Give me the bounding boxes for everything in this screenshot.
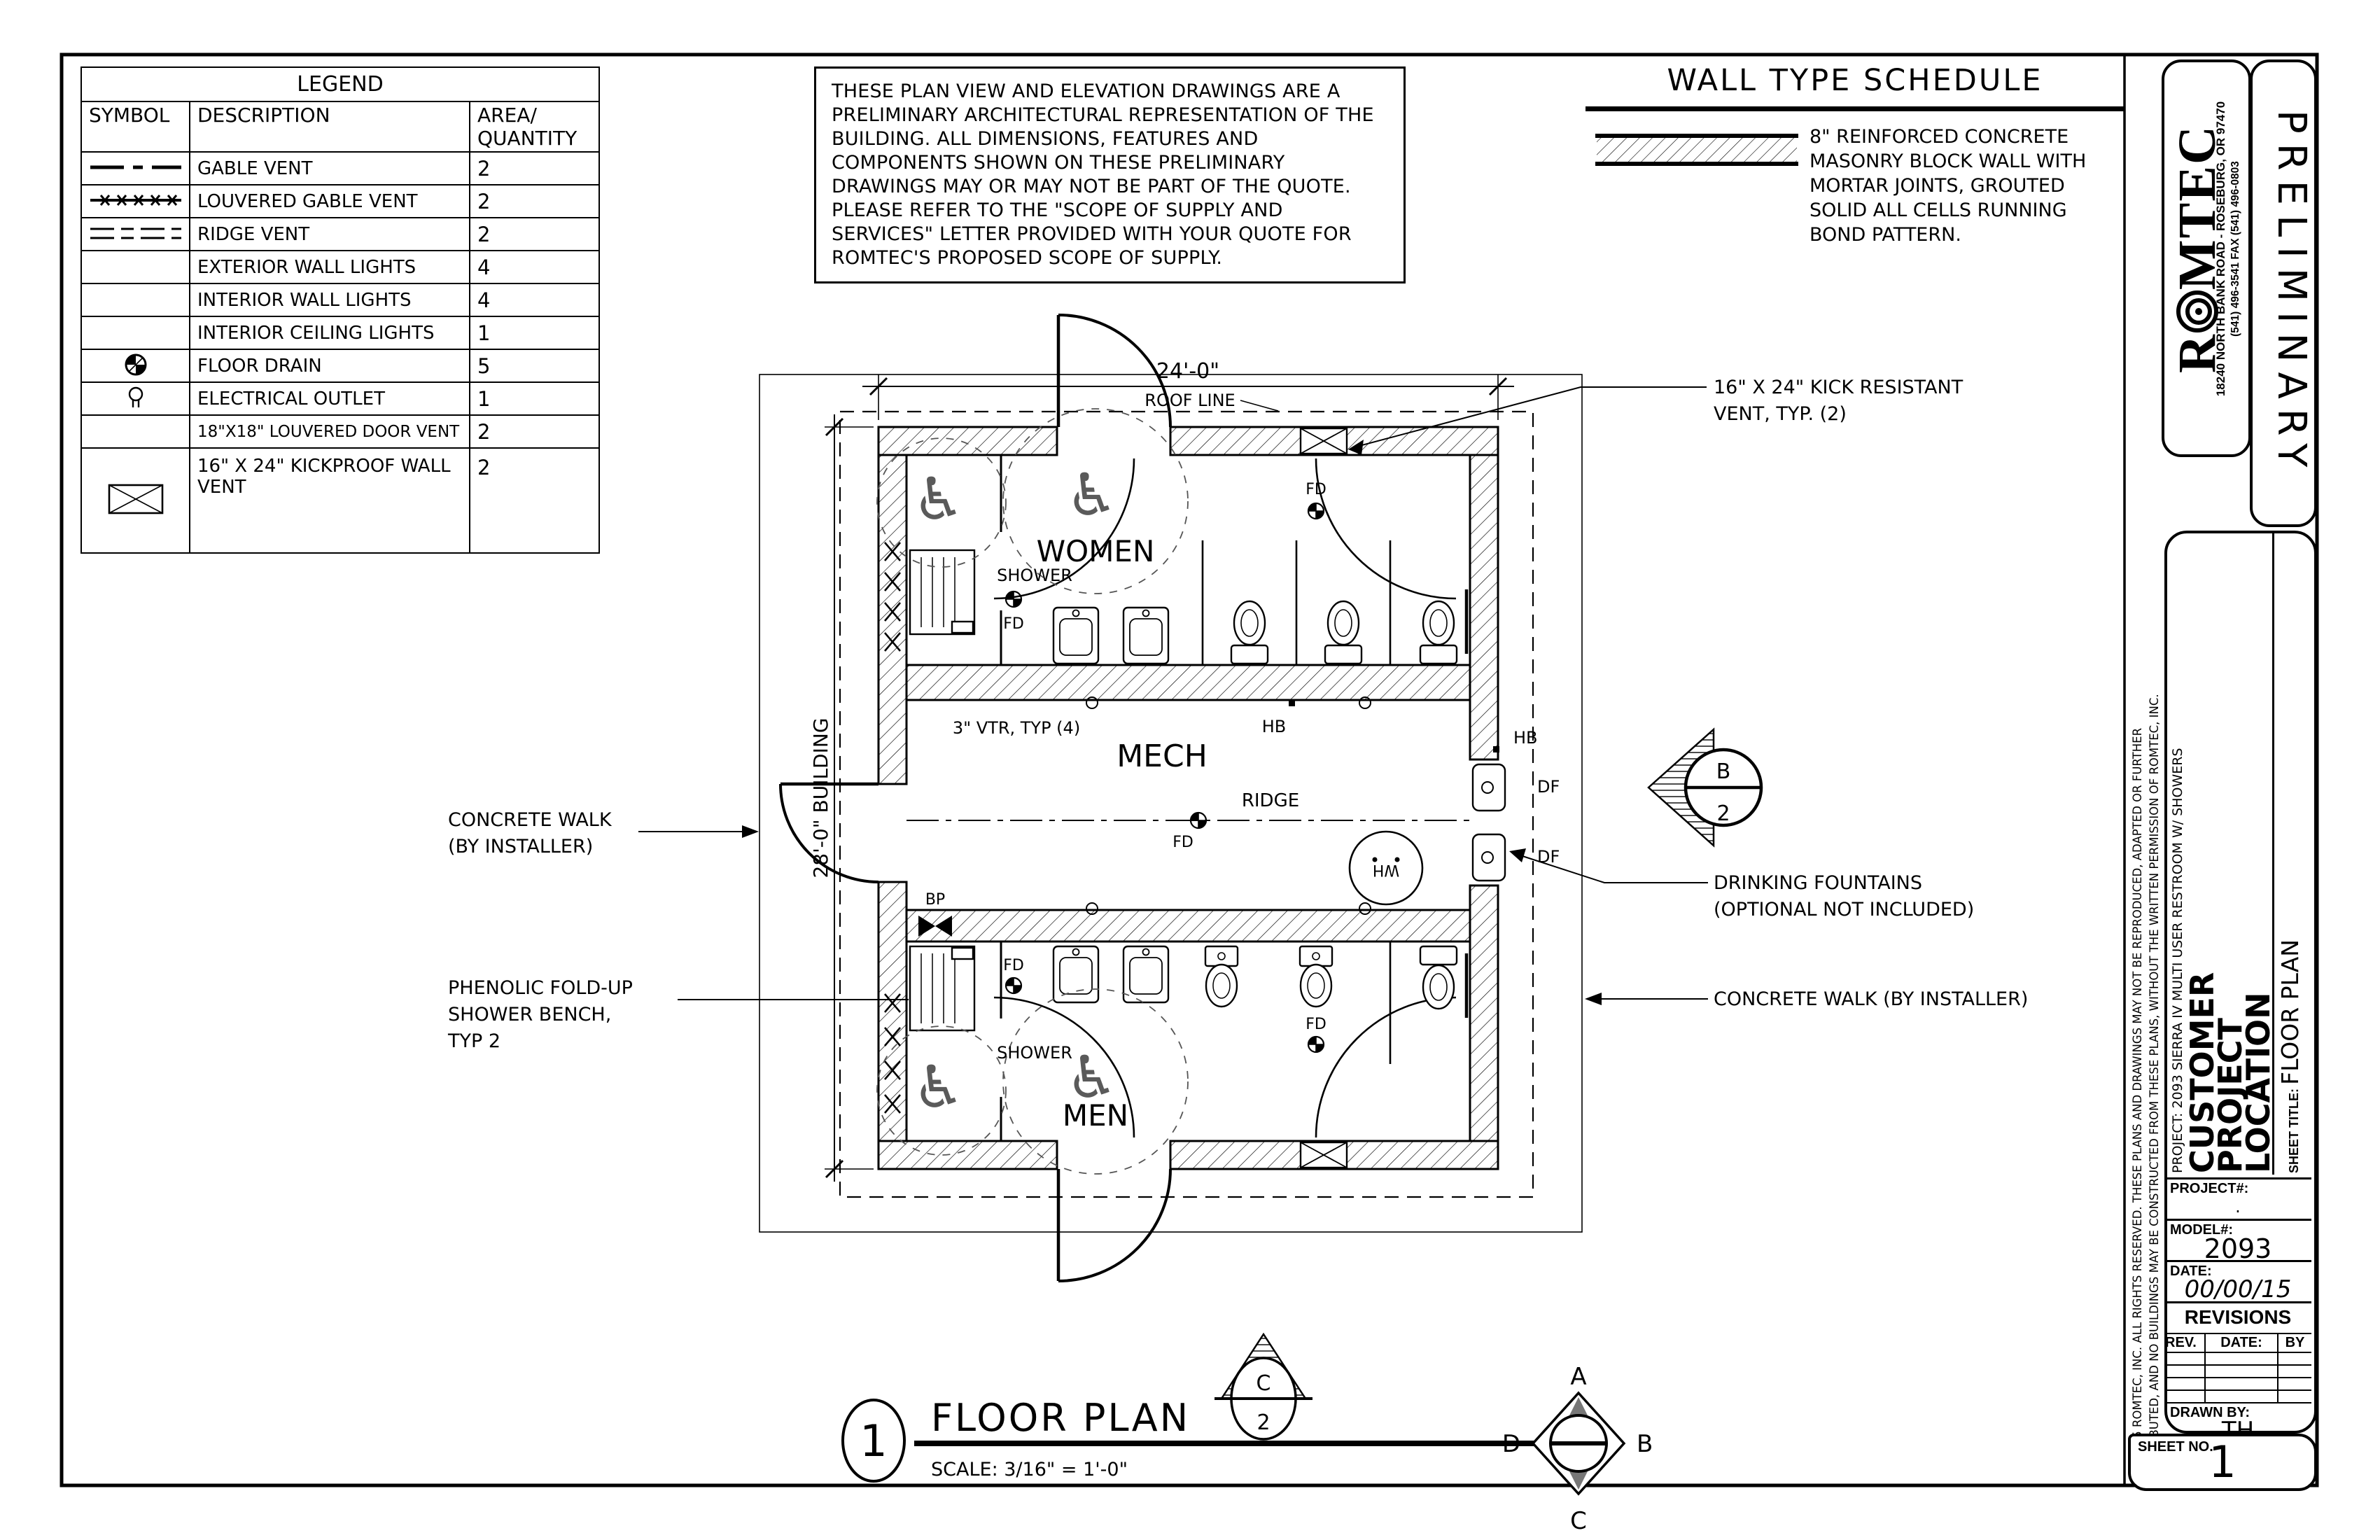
svg-text:SHOWER BENCH,: SHOWER BENCH,: [448, 1004, 611, 1025]
project-data-cells: PROJECT#: . MODEL#: 2093 DATE: 00/00/15 …: [2164, 1177, 2311, 1443]
revisions-header: REVISIONS: [2164, 1301, 2311, 1333]
preliminary-notes: THESE PLAN VIEW AND ELEVATION DRAWINGS A…: [814, 66, 1406, 283]
compass-a-label: A: [1570, 1363, 1586, 1391]
legend-row: FLOOR DRAIN5: [81, 349, 599, 382]
mens-fixtures: ♿ ♿: [877, 946, 1457, 1174]
compass-b-label: B: [1637, 1430, 1653, 1458]
electrical-outlet-icon: [87, 384, 185, 411]
roof-line-label: ROOF LINE: [1144, 391, 1235, 410]
svg-text:DRINKING FOUNTAINS: DRINKING FOUNTAINS: [1714, 872, 1922, 894]
drawing-sheet: ♿ ♿ ♿ ♿: [0, 0, 2380, 1540]
legend-col-description: DESCRIPTION: [190, 101, 470, 152]
floor-plan-scale: SCALE: 3/16" = 1'-0": [931, 1459, 1128, 1480]
preliminary-text: PRELIMINARY: [2253, 62, 2314, 524]
date-value: 00/00/15: [2170, 1280, 2306, 1299]
louvered-gable-vent-line-icon: [87, 188, 185, 213]
svg-text:CONCRETE WALK: CONCRETE WALK: [448, 809, 612, 831]
preliminary-box: PRELIMINARY: [2250, 59, 2317, 527]
romtec-address: 18240 NORTH BANK ROAD - ROSEBURG, OR 974…: [2213, 58, 2243, 440]
model-no-value: 2093: [2170, 1238, 2306, 1259]
shower-label: SHOWER: [997, 1043, 1072, 1063]
kickproof-wall-vent-icon: [87, 478, 185, 520]
room-label-mech: MECH: [1116, 738, 1207, 774]
df-label: DF: [1537, 777, 1560, 797]
sheet-no-box: SHEET NO. 1: [2128, 1434, 2317, 1491]
legend-row: 16" X 24" KICKPROOF WALL VENT 2: [81, 448, 599, 553]
elevation-marker-letter: C: [1256, 1371, 1271, 1396]
floor-drain-icon: [87, 351, 185, 378]
section-marker-letter: B: [1716, 759, 1731, 784]
legend-title: LEGEND: [81, 67, 599, 101]
orientation-compass: A B C D: [1502, 1363, 1653, 1535]
room-label-men: MEN: [1063, 1098, 1128, 1133]
wheelchair-icon: ♿: [912, 1053, 965, 1121]
svg-text:(OPTIONAL NOT INCLUDED): (OPTIONAL NOT INCLUDED): [1714, 899, 1974, 920]
wall-type-schedule-title: WALL TYPE SCHEDULE: [1585, 63, 2124, 98]
project-no-value: .: [2170, 1197, 2306, 1217]
ridge-label: RIDGE: [1242, 790, 1299, 811]
elevation-marker-c2: C 2: [1214, 1334, 1312, 1439]
svg-text:(BY INSTALLER): (BY INSTALLER): [448, 836, 593, 857]
legend-col-quantity: AREA/QUANTITY: [470, 101, 599, 152]
romtec-spiral-icon: [2176, 290, 2219, 333]
legend-row: EXTERIOR WALL LIGHTS4: [81, 251, 599, 283]
rev-col: REV.: [2164, 1333, 2205, 1352]
annotation-concrete-walk-left: CONCRETE WALK (BY INSTALLER): [448, 809, 759, 857]
annotation-drinking-fountains: DRINKING FOUNTAINS (OPTIONAL NOT INCLUDE…: [1509, 848, 1974, 920]
floor-plan-title: FLOOR PLAN: [931, 1396, 1190, 1440]
legend-row: 18"X18" LOUVERED DOOR VENT2: [81, 415, 599, 448]
revisions-table: REV. DATE: BY: [2164, 1333, 2311, 1403]
wall-type-description: 8" REINFORCED CONCRETE MASONRY BLOCK WAL…: [1809, 125, 2124, 247]
detail-number: 1: [860, 1415, 887, 1466]
legend-row: LOUVERED GABLE VENT2: [81, 185, 599, 218]
legend-row: RIDGE VENT2: [81, 218, 599, 251]
gable-vent-line-icon: [87, 155, 185, 180]
drinking-fountain-icon: [1473, 764, 1505, 881]
compass-c-label: C: [1570, 1507, 1587, 1535]
kick-resistant-vent-icon: [1301, 428, 1347, 454]
fd-label: FD: [1305, 481, 1326, 498]
legend-table: LEGEND SYMBOL DESCRIPTION AREA/QUANTITY …: [80, 66, 600, 554]
sheet-no-value: 1: [2131, 1436, 2314, 1488]
dim-width-text: 24'-0": [1156, 359, 1219, 384]
wheelchair-icon: ♿: [912, 465, 965, 533]
project-no-label: PROJECT#:: [2170, 1181, 2248, 1196]
floor-plan-title-block: 1 FLOOR PLAN SCALE: 3/16" = 1'-0": [843, 1396, 1534, 1481]
ridge-vent-line-icon: [87, 220, 185, 246]
fd-label: FD: [1172, 834, 1193, 851]
svg-text:TYP 2: TYP 2: [447, 1030, 500, 1052]
wheelchair-icon: ♿: [1065, 461, 1118, 529]
svg-text:PHENOLIC FOLD-UP: PHENOLIC FOLD-UP: [448, 977, 633, 999]
customer-project-location: CUSTOMER PROJECT LOCATION: [2188, 535, 2272, 1173]
vtr-label: 3" VTR, TYP (4): [953, 718, 1080, 738]
schedule-rule: [1585, 106, 2124, 111]
hb-label: HB: [1513, 728, 1538, 748]
hb-label: HB: [1262, 717, 1287, 736]
legend-row: INTERIOR CEILING LIGHTS1: [81, 316, 599, 349]
legend-col-symbol: SYMBOL: [81, 101, 190, 152]
bp-label: BP: [925, 891, 945, 909]
copyright-text: © 2015 ROMTEC, INC. ALL RIGHTS RESERVED.…: [2129, 482, 2163, 1476]
annotation-concrete-walk-right: CONCRETE WALK (BY INSTALLER): [1585, 988, 2028, 1010]
divider: [2272, 533, 2274, 1175]
df-label: DF: [1537, 847, 1560, 867]
rev-date-col: DATE:: [2205, 1333, 2278, 1352]
legend-row: ELECTRICAL OUTLET1: [81, 382, 599, 415]
shower-label: SHOWER: [997, 566, 1072, 585]
shower-pan: [910, 946, 974, 1030]
dimension-28ft: 28'-0" BUILDING: [809, 414, 874, 1182]
cmu-wall-symbol-icon: [1595, 130, 1800, 171]
svg-text:CONCRETE WALK (BY INSTALLER): CONCRETE WALK (BY INSTALLER): [1714, 988, 2028, 1010]
fd-label: FD: [1305, 1016, 1326, 1033]
dim-height-text: 28'-0" BUILDING: [809, 717, 832, 878]
fd-label: FD: [1003, 957, 1024, 974]
wh-label: WH: [1373, 861, 1399, 878]
plan-labels: WOMEN MECH MEN SHOWER SHOWER FD FD FD FD…: [925, 391, 1560, 1133]
svg-text:VENT, TYP. (2): VENT, TYP. (2): [1714, 403, 1847, 425]
rev-by-col: BY: [2278, 1333, 2311, 1352]
sheet-title-cell: SHEET TITLE: FLOOR PLAN: [2276, 535, 2304, 1173]
kick-resistant-vent-icon: [1301, 1142, 1347, 1168]
svg-text:16" X 24" KICK RESISTANT: 16" X 24" KICK RESISTANT: [1714, 377, 1963, 398]
fd-label: FD: [1003, 615, 1024, 633]
legend-row: INTERIOR WALL LIGHTS4: [81, 283, 599, 316]
wall-type-schedule: WALL TYPE SCHEDULE 8" REINFORCED CONCRET…: [1585, 63, 2124, 111]
section-marker-b2: B 2: [1648, 729, 1761, 846]
building-walls: [878, 427, 1498, 1169]
legend-row: GABLE VENT2: [81, 152, 599, 185]
section-marker-number: 2: [1716, 801, 1730, 826]
room-label-women: WOMEN: [1037, 534, 1155, 568]
elevation-marker-number: 2: [1256, 1410, 1270, 1435]
